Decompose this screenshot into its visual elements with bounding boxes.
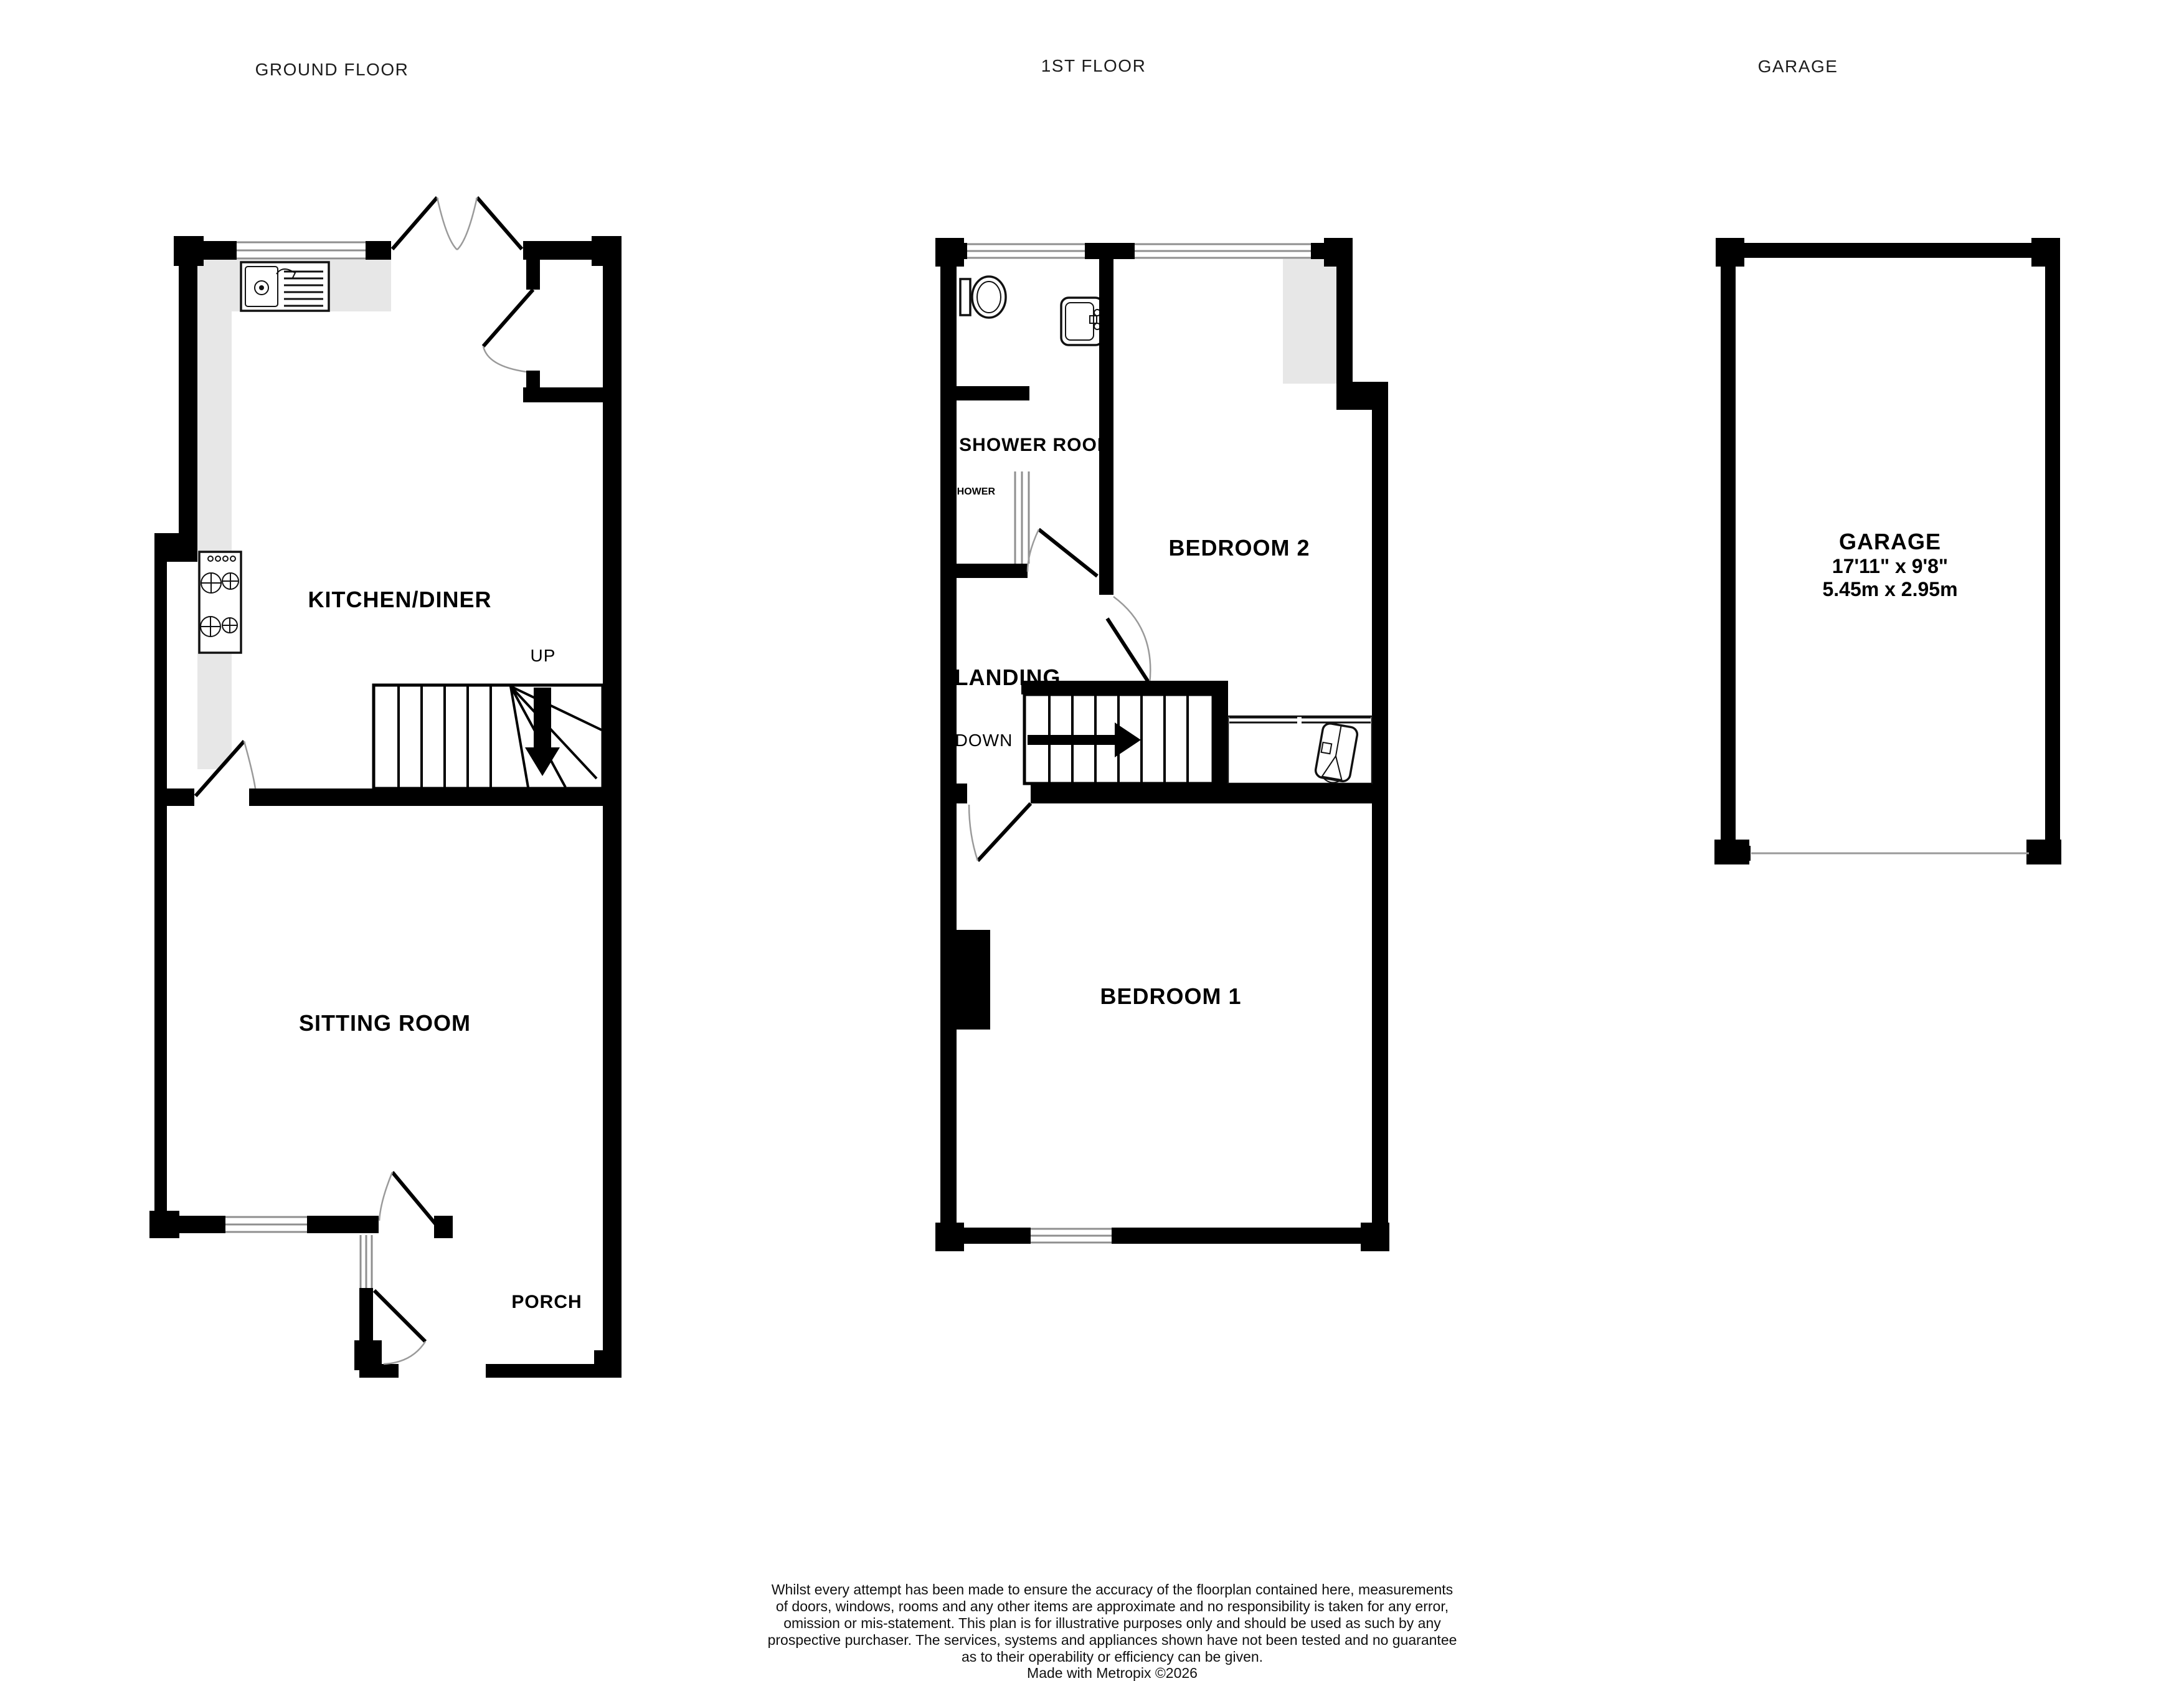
garage-label: GARAGE (1839, 529, 1941, 554)
floorplan-canvas: GROUND FLOOR 1ST FLOOR GARAGE (0, 0, 2184, 1681)
down-label: DOWN (955, 731, 1013, 750)
wall-corner (594, 1350, 622, 1378)
front-door-swing (374, 1290, 425, 1364)
disclaimer: Whilst every attempt has been made to en… (768, 1581, 1457, 1681)
door-swing (969, 803, 1031, 861)
disclaimer-line: Whilst every attempt has been made to en… (772, 1581, 1453, 1598)
wall-porch-bottom (359, 1364, 399, 1378)
kitchen-counter-left (197, 260, 232, 769)
wall-divider (249, 788, 603, 806)
disclaimer-line: omission or mis-statement. This plan is … (783, 1615, 1441, 1631)
window (237, 241, 366, 260)
garage-size-metric: 5.45m x 2.95m (1822, 578, 1957, 600)
window (225, 1216, 307, 1233)
airing-cupboard (1228, 716, 1372, 785)
cupboard-wall-stub (526, 260, 540, 290)
disclaimer-line: of doors, windows, rooms and any other i… (776, 1598, 1449, 1614)
cupboard-door-swing (483, 290, 533, 372)
wall-top (1721, 243, 2060, 258)
garage-size-imperial: 17'11" x 9'8" (1832, 555, 1948, 577)
disclaimer-line: prospective purchaser. The services, sys… (768, 1632, 1457, 1648)
toilet (960, 277, 1006, 318)
door-swing (379, 1172, 436, 1224)
ground-floor-title: GROUND FLOOR (255, 60, 409, 79)
shower-wall-stub (954, 386, 1029, 400)
wall-right (2045, 243, 2060, 861)
porch-label: PORCH (511, 1292, 582, 1312)
wardrobe (1283, 259, 1336, 384)
window (967, 243, 1085, 259)
disclaimer-line: as to their operability or efficiency ca… (962, 1649, 1263, 1665)
chimney-breast (957, 930, 990, 1030)
wall-bottom (154, 1216, 225, 1233)
wall-stairs-right (1213, 681, 1228, 785)
wall-bottom (1721, 846, 1751, 861)
wall-bed1-top (1031, 784, 1372, 803)
wall-top (1085, 243, 1135, 259)
cupboard-wall-bottom (523, 387, 603, 402)
ground-floor-plan: UP (149, 197, 622, 1378)
door-swing (1028, 529, 1097, 576)
kitchen-label: KITCHEN/DINER (308, 587, 491, 612)
up-label: UP (531, 646, 556, 665)
landing-label: LANDING (955, 665, 1061, 690)
wall-left (1721, 243, 1736, 861)
sitting-room-label: SITTING ROOM (299, 1010, 471, 1036)
cupboard-wall-jamb (526, 371, 540, 389)
wall-shower-bottom (954, 564, 1028, 578)
wall-bottom (2030, 846, 2060, 861)
shower-label: SHOWER (950, 486, 995, 497)
window (1031, 1228, 1112, 1244)
wall-bottom (307, 1216, 379, 1233)
kitchen-sink (241, 262, 329, 311)
first-floor-plan: DOWN SHOWER ROOM SHOWER (935, 238, 1389, 1251)
window (359, 1235, 373, 1288)
shower-room-label: SHOWER ROOM (959, 435, 1113, 455)
wall-bottom (1112, 1228, 1388, 1244)
metropix-credit: Made with Metropix ©2026 (1027, 1665, 1198, 1681)
wall-left-lower (154, 548, 167, 1233)
bedroom2-label: BEDROOM 2 (1168, 535, 1310, 561)
garage-plan: GARAGE 17'11" x 9'8" 5.45m x 2.95m (1714, 238, 2061, 864)
first-floor-title: 1ST FLOOR (1041, 56, 1146, 75)
wall-divider (154, 788, 194, 806)
wall-bed1-top (940, 784, 967, 803)
wall-right-lower (1372, 395, 1388, 1244)
window (1135, 243, 1311, 259)
wall-right (603, 241, 622, 1378)
garage-title: GARAGE (1758, 57, 1838, 76)
shower-screen (1015, 471, 1029, 564)
bedroom1-label: BEDROOM 1 (1100, 983, 1241, 1009)
door-swing (1107, 597, 1150, 684)
wall-left-upper (179, 241, 197, 561)
up-arrow (534, 688, 551, 747)
wall-top (366, 241, 391, 260)
stairs-up (374, 685, 603, 788)
stove (199, 552, 241, 653)
french-doors (392, 197, 522, 250)
wall-right-upper (1336, 243, 1353, 395)
wall-jamb (434, 1216, 453, 1238)
wash-basin (1061, 298, 1103, 345)
stairs-down (1024, 694, 1213, 784)
wall-divider (1099, 259, 1113, 595)
down-arrow (1028, 735, 1115, 745)
wall-bottom (940, 1228, 1031, 1244)
